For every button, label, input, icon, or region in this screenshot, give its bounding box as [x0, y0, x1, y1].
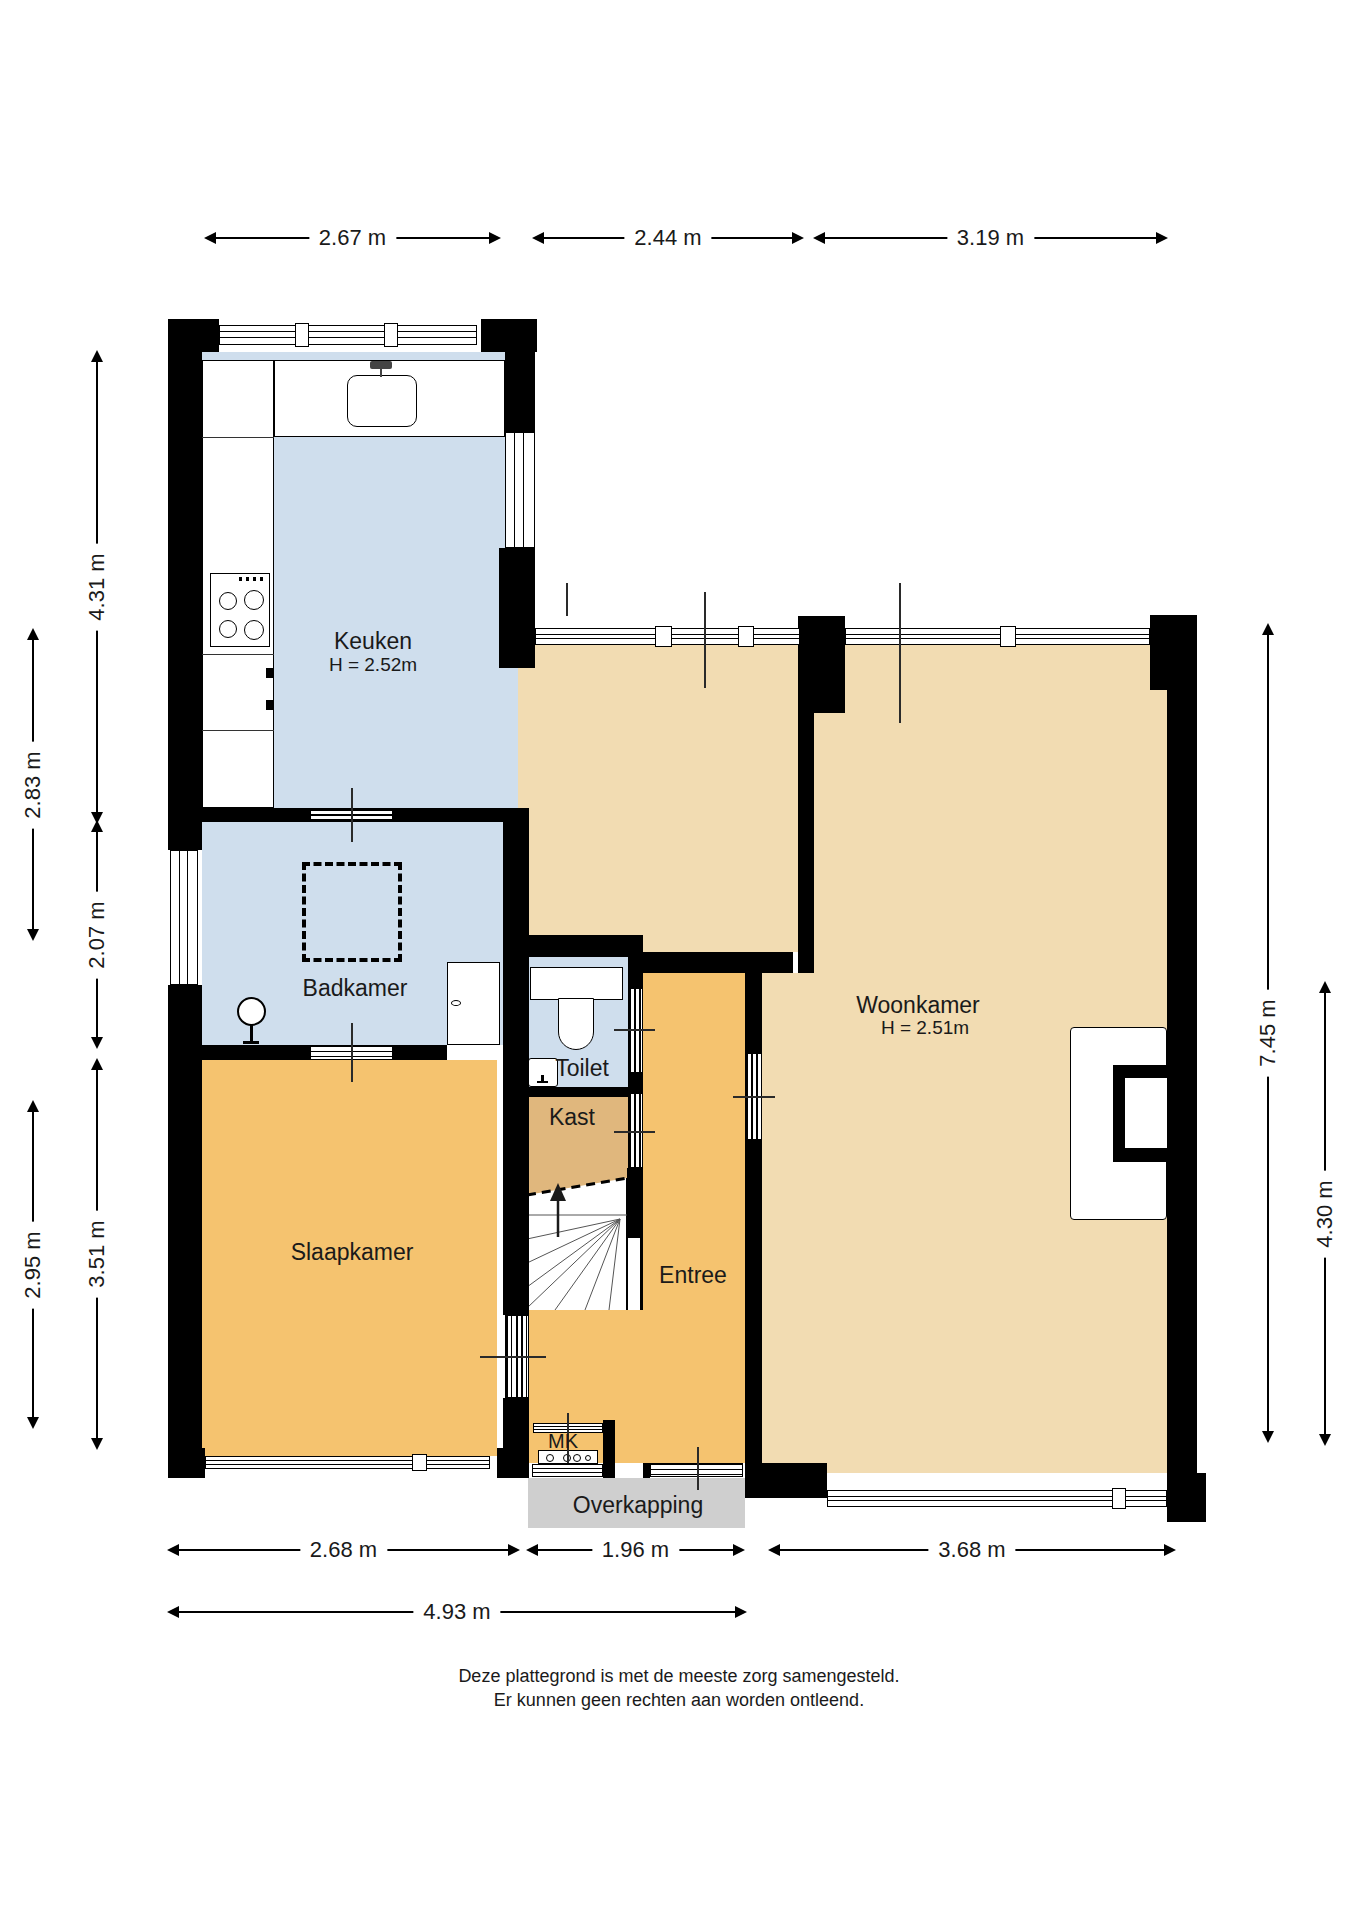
room-label-badkamer: Badkamer — [303, 975, 408, 1002]
toilet-sink — [528, 1058, 558, 1087]
washbasin-pedestal — [250, 1024, 253, 1042]
dimension-outer-1: 2.83 m — [32, 630, 34, 939]
dimension-right-total: 7.45 m — [1267, 625, 1269, 1441]
entree-floor — [643, 973, 745, 1463]
wall-segment — [745, 1140, 762, 1463]
room-label-kast: Kast — [549, 1104, 595, 1131]
wall-segment — [503, 808, 529, 1315]
stove-burner — [244, 590, 264, 610]
washbasin-pedestal — [243, 1041, 259, 1044]
stairs — [527, 1175, 643, 1312]
kitchen-sink — [347, 375, 417, 427]
wall-segment — [643, 1463, 650, 1478]
wall-segment — [745, 973, 762, 1053]
toilet-cistern — [530, 967, 623, 1000]
room-height-woonkamer: H = 2.51m — [881, 1017, 969, 1039]
door-handle-icon — [451, 1000, 461, 1006]
meter-icon — [546, 1454, 554, 1462]
dimension-top-1: 2.67 m — [206, 237, 499, 239]
wall-segment — [1167, 1473, 1206, 1522]
wall-segment — [505, 352, 535, 432]
woonkamer-floor — [812, 952, 1167, 973]
wall-segment — [798, 713, 814, 973]
room-label-keuken: Keuken — [334, 628, 412, 655]
wall-segment — [603, 1420, 615, 1478]
keuken-side-window — [505, 432, 535, 548]
wall-segment — [627, 1168, 643, 1238]
wall-segment — [168, 985, 202, 1448]
wall-segment — [497, 1448, 529, 1478]
dimension-left-slaapkamer: 3.51 m — [96, 1060, 98, 1448]
wall-segment — [168, 319, 219, 352]
stove-burner — [219, 592, 237, 610]
wall-segment — [481, 319, 537, 352]
wall-segment — [745, 1463, 827, 1498]
fireplace-chimney — [1125, 1078, 1167, 1148]
meter-icon — [585, 1455, 591, 1461]
room-label-entree: Entree — [659, 1262, 727, 1289]
room-label-toilet: Toilet — [555, 1055, 609, 1082]
wall-segment — [640, 1238, 643, 1310]
keuken-window — [219, 325, 477, 345]
meter-icon — [573, 1454, 581, 1462]
dimension-bottom-3: 3.68 m — [770, 1549, 1174, 1551]
dimension-outer-2: 2.95 m — [32, 1102, 34, 1427]
wall-segment — [628, 957, 643, 988]
wall-segment — [517, 1087, 628, 1097]
wall-segment — [393, 1045, 447, 1060]
wall-segment — [393, 808, 505, 822]
kitchen-faucet-icon — [380, 367, 382, 377]
badkamer-window — [170, 850, 198, 985]
wall-segment — [628, 1073, 643, 1093]
disclaimer-line-1: Deze plattegrond is met de meeste zorg s… — [0, 1666, 1358, 1687]
disclaimer-line-2: Er kunnen geen rechten aan worden ontlee… — [0, 1690, 1358, 1711]
dimension-left-badkamer: 2.07 m — [96, 822, 98, 1047]
entree-floor — [529, 1310, 643, 1463]
dimension-bottom-total: 4.93 m — [169, 1611, 745, 1613]
room-height-keuken: H = 2.52m — [329, 654, 417, 676]
dimension-top-3: 3.19 m — [815, 237, 1166, 239]
dimension-left-keuken: 4.31 m — [96, 352, 98, 822]
wall-segment — [202, 808, 310, 822]
room-label-mk: MK — [548, 1430, 578, 1453]
wall-segment — [798, 616, 845, 713]
dimension-right-lower: 4.30 m — [1324, 983, 1326, 1444]
dimension-bottom-1: 2.68 m — [169, 1549, 518, 1551]
toilet-bowl — [558, 998, 594, 1050]
shower — [302, 862, 402, 962]
dimension-bottom-2: 1.96 m — [528, 1549, 743, 1551]
dimension-top-2: 2.44 m — [534, 237, 802, 239]
woonkamer-floor — [527, 808, 1167, 952]
room-label-overkapping: Overkapping — [573, 1492, 703, 1519]
washbasin — [237, 997, 266, 1026]
stove-burner — [244, 620, 264, 640]
stove-knobs — [237, 577, 265, 581]
wall-segment — [168, 319, 202, 850]
wall-segment — [1167, 615, 1197, 1522]
wall-segment — [643, 952, 793, 973]
stove-burner — [219, 620, 237, 638]
wall-segment — [517, 935, 643, 957]
room-label-woonkamer: Woonkamer — [856, 992, 980, 1019]
wall-segment — [202, 1045, 310, 1060]
woonkamer-window — [845, 628, 1150, 645]
stove — [210, 573, 270, 647]
wall-segment — [168, 1448, 205, 1478]
mk-sill — [532, 1464, 603, 1477]
wall-segment — [499, 548, 535, 668]
room-label-slaapkamer: Slaapkamer — [291, 1239, 414, 1266]
slaapkamer-window — [205, 1456, 490, 1469]
floorplan: Keuken H = 2.52m Woonkamer H = 2.51m Bad… — [0, 0, 1358, 1920]
